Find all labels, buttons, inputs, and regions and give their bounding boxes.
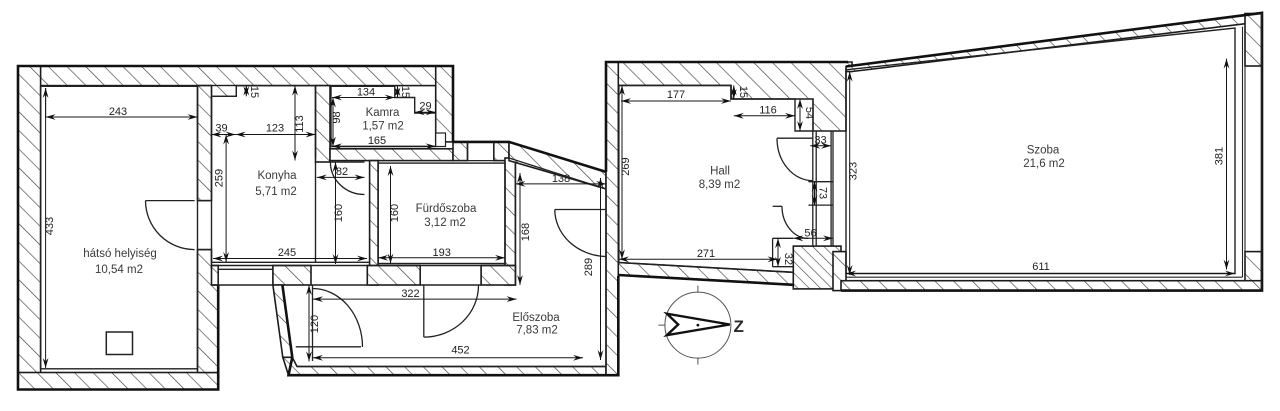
svg-text:5,71 m2: 5,71 m2 [255,186,297,198]
svg-text:73: 73 [817,187,829,199]
svg-text:Hall: Hall [710,166,730,178]
svg-text:21,6 m2: 21,6 m2 [1023,158,1065,170]
svg-text:243: 243 [109,106,127,118]
svg-text:82: 82 [336,166,348,178]
svg-text:271: 271 [697,248,715,260]
svg-text:29: 29 [419,101,431,113]
svg-text:269: 269 [620,157,632,175]
svg-text:15: 15 [737,86,749,98]
svg-text:322: 322 [401,288,419,300]
svg-text:Szoba: Szoba [1027,145,1060,157]
svg-text:193: 193 [433,247,451,259]
svg-text:381: 381 [1214,147,1226,165]
svg-text:113: 113 [294,115,306,133]
svg-text:177: 177 [667,89,685,101]
svg-text:165: 165 [368,135,386,147]
svg-text:245: 245 [278,247,296,259]
svg-text:323: 323 [848,162,860,180]
svg-text:7,83 m2: 7,83 m2 [516,325,558,337]
svg-text:452: 452 [451,345,469,357]
svg-text:Előszoba: Előszoba [512,312,560,324]
svg-text:98: 98 [331,111,343,123]
svg-text:138: 138 [552,173,570,185]
svg-text:259: 259 [214,169,226,187]
svg-text:15: 15 [399,86,411,98]
svg-text:134: 134 [357,87,375,99]
svg-text:hátsó helyiség: hátsó helyiség [83,248,157,260]
svg-text:433: 433 [44,217,56,235]
svg-text:611: 611 [1032,261,1050,273]
svg-text:168: 168 [520,223,532,241]
svg-text:15: 15 [248,86,260,98]
svg-text:289: 289 [583,258,595,276]
svg-text:3,12 m2: 3,12 m2 [424,217,466,229]
svg-text:56: 56 [804,228,816,240]
svg-text:39: 39 [215,123,227,135]
svg-text:123: 123 [266,123,284,135]
svg-text:Z: Z [734,317,744,336]
svg-text:120: 120 [309,315,321,333]
svg-text:1,57 m2: 1,57 m2 [362,121,404,133]
svg-text:54: 54 [803,107,815,119]
svg-text:160: 160 [389,204,401,222]
svg-text:116: 116 [759,105,777,117]
svg-text:Konyha: Konyha [257,170,297,182]
svg-text:Kamra: Kamra [366,107,400,119]
svg-text:33: 33 [814,135,826,147]
svg-text:Fürdőszoba: Fürdőszoba [416,203,477,215]
svg-text:160: 160 [333,204,345,222]
svg-text:8,39 m2: 8,39 m2 [699,179,741,191]
svg-text:10,54 m2: 10,54 m2 [95,264,143,276]
svg-text:32: 32 [782,253,794,265]
